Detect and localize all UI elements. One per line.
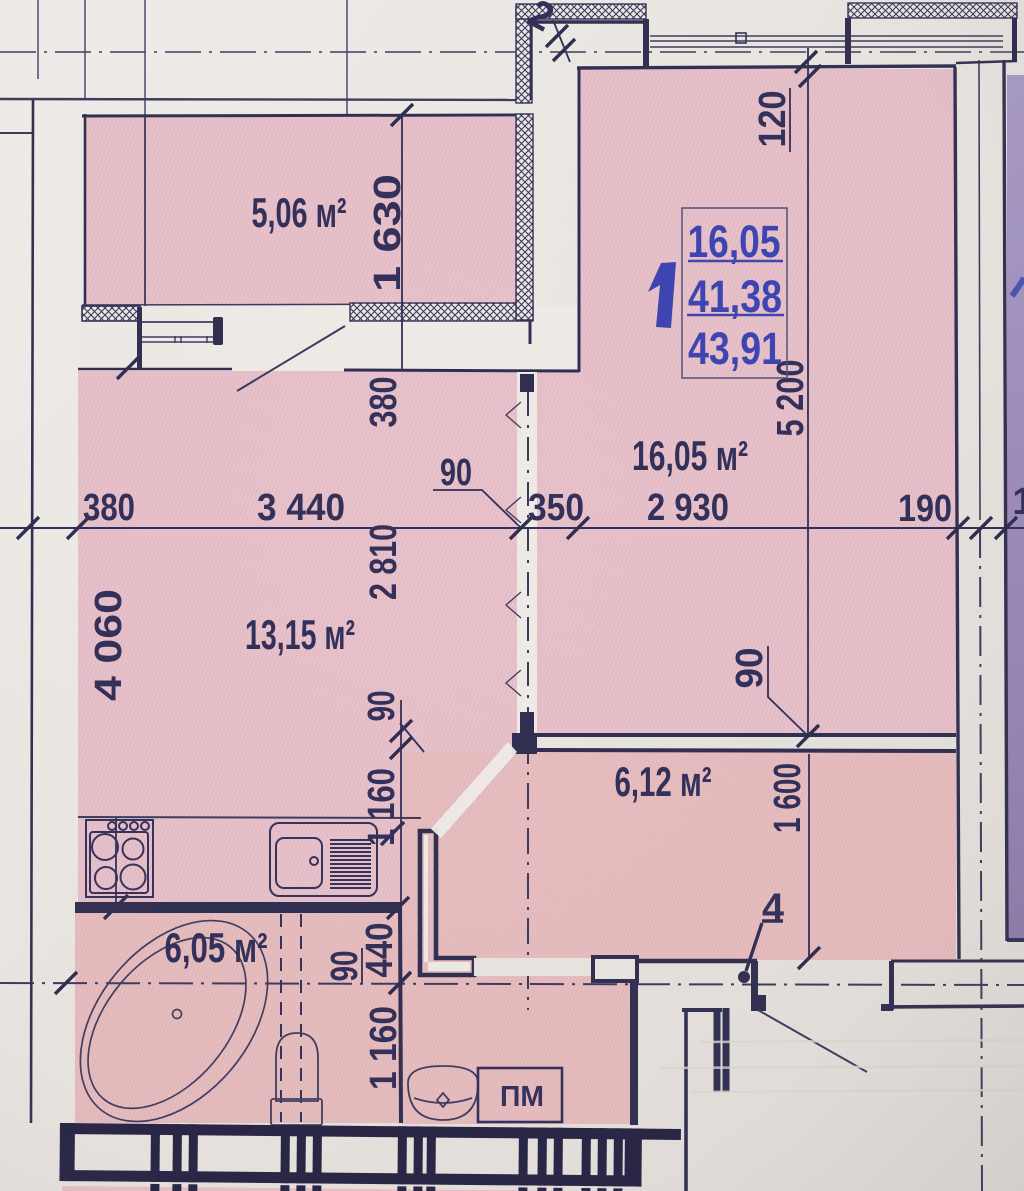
svg-text:13,15 м²: 13,15 м² — [245, 611, 355, 658]
svg-text:16,05 м²: 16,05 м² — [632, 432, 748, 479]
svg-text:120: 120 — [752, 91, 794, 148]
svg-text:4 060: 4 060 — [88, 589, 130, 701]
svg-text:90: 90 — [729, 648, 771, 689]
svg-text:90: 90 — [361, 691, 403, 722]
svg-text:16,05: 16,05 — [688, 216, 781, 267]
svg-text:1 600: 1 600 — [767, 763, 809, 833]
svg-text:6,12 м²: 6,12 м² — [615, 758, 712, 805]
svg-text:350: 350 — [528, 487, 584, 529]
svg-text:380: 380 — [83, 487, 135, 529]
svg-text:1 630: 1 630 — [367, 174, 409, 292]
svg-text:90: 90 — [440, 452, 472, 494]
svg-text:43,91: 43,91 — [688, 323, 782, 374]
svg-text:2 810: 2 810 — [363, 524, 405, 600]
svg-text:1 160: 1 160 — [363, 1006, 405, 1090]
svg-text:1: 1 — [1012, 481, 1024, 523]
svg-text:440: 440 — [359, 923, 401, 978]
svg-text:3 440: 3 440 — [257, 487, 345, 529]
svg-text:190: 190 — [898, 488, 952, 530]
svg-text:5,06 м²: 5,06 м² — [252, 189, 347, 236]
svg-text:6,05 м²: 6,05 м² — [165, 924, 268, 971]
svg-text:380: 380 — [363, 377, 405, 428]
svg-text:1 160: 1 160 — [361, 768, 403, 846]
svg-text:2 930: 2 930 — [647, 487, 729, 529]
